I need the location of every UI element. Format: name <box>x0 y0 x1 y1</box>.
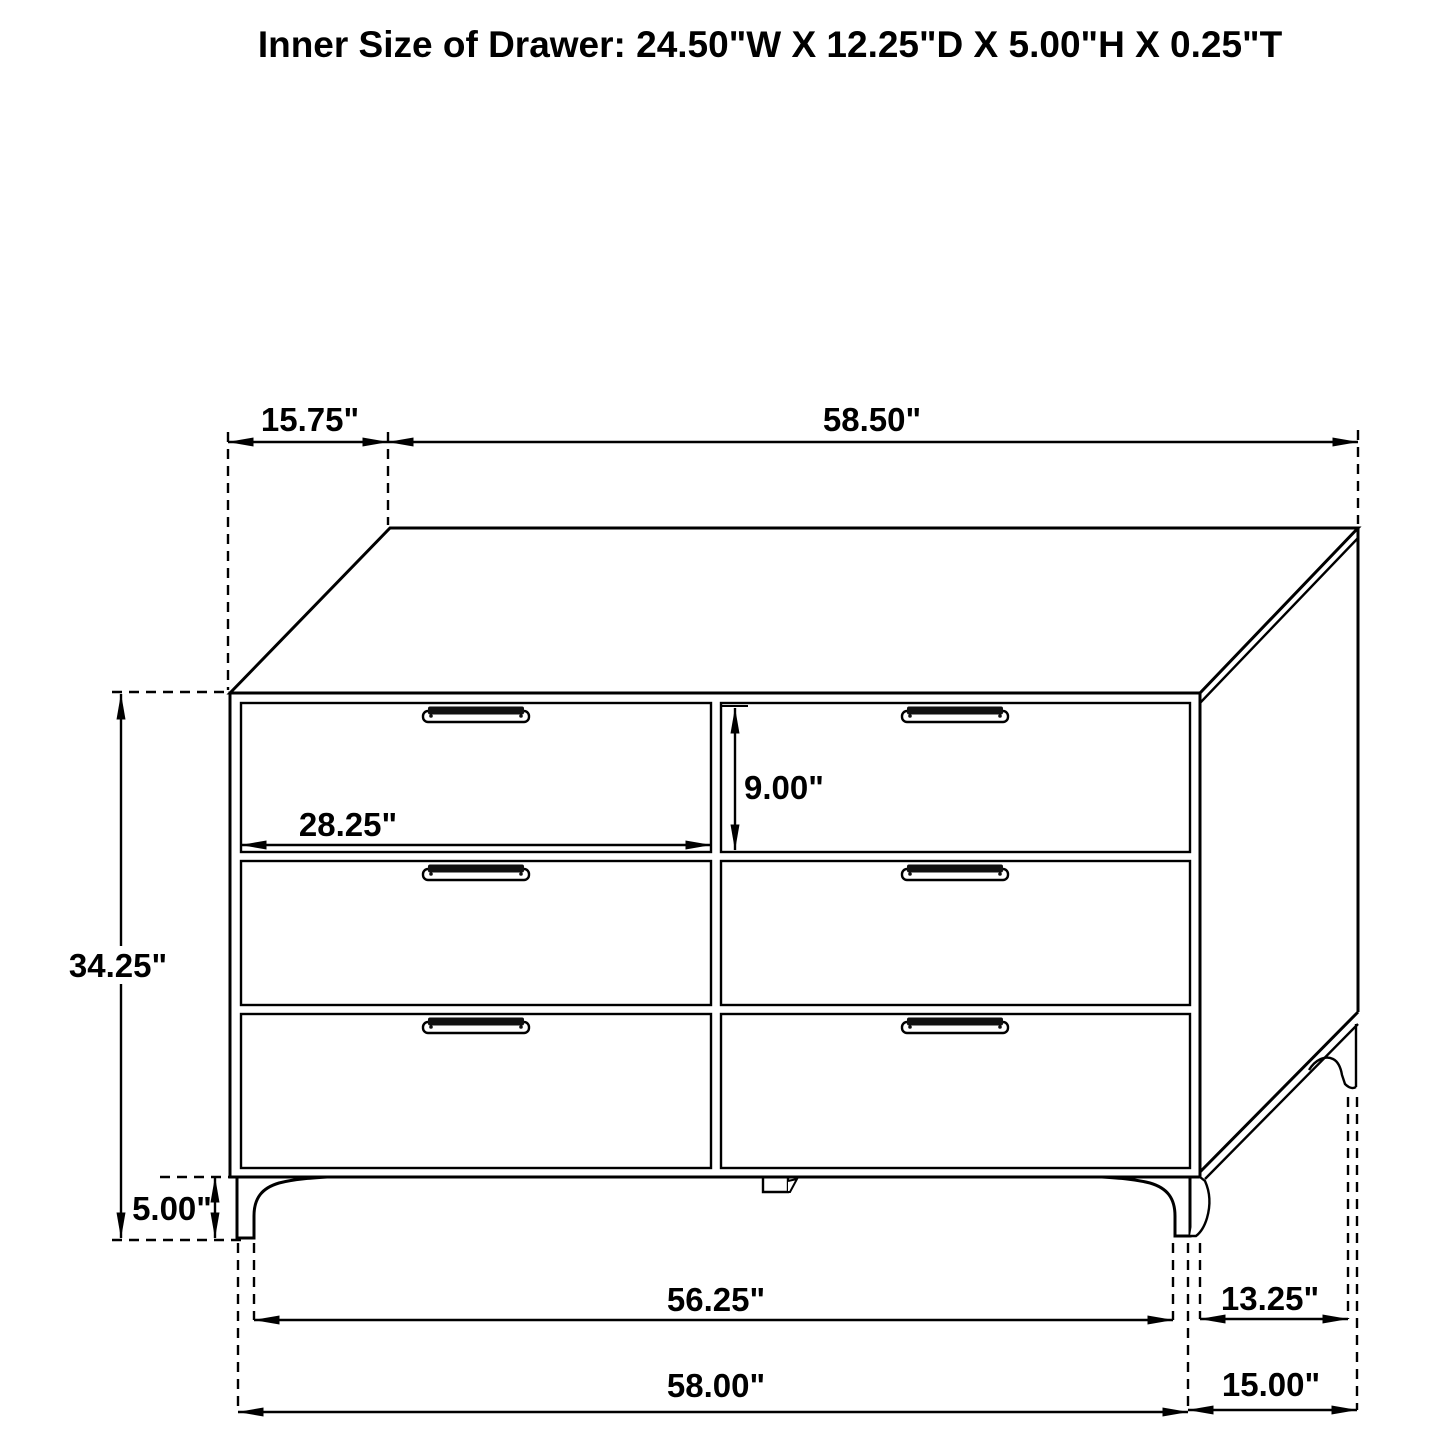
dim-label-base-depth: 15.00" <box>1222 1366 1320 1403</box>
dim-top-width: 58.50" <box>388 401 1358 524</box>
front-right-foot-side <box>1190 1177 1209 1236</box>
dim-label-overall-height: 34.25" <box>69 947 167 984</box>
dim-base-depth: 15.00" <box>1188 1097 1357 1410</box>
drawer-front-middle-left <box>241 861 711 1005</box>
drawer-handle-bottom-right <box>902 1018 1008 1034</box>
dim-label-leg-height: 5.00" <box>132 1190 212 1227</box>
drawer-handle-top-left <box>423 707 529 723</box>
dim-label-top-width: 58.50" <box>823 401 921 438</box>
dim-label-drawer-height: 9.00" <box>744 769 824 806</box>
dim-feet-inner-width: 56.25" <box>254 1243 1173 1320</box>
dimension-diagram-page: Inner Size of Drawer: 24.50"W X 12.25"D … <box>0 0 1445 1445</box>
dim-overall-height: 34.25" <box>64 692 242 1240</box>
dresser-dimension-svg: Inner Size of Drawer: 24.50"W X 12.25"D … <box>0 0 1445 1445</box>
dim-label-feet-inner-width: 56.25" <box>667 1281 765 1318</box>
dim-leg-height: 5.00" <box>132 1177 232 1238</box>
dim-label-side-feet-span: 13.25" <box>1221 1280 1319 1317</box>
drawer-handle-top-right <box>902 707 1008 723</box>
drawer-front-middle-right <box>721 861 1190 1005</box>
center-foot <box>763 1177 797 1192</box>
dim-label-base-width: 58.00" <box>667 1367 765 1404</box>
dim-side-feet-span: 13.25" <box>1200 1097 1348 1319</box>
dim-label-top-depth: 15.75" <box>261 401 359 438</box>
page-title: Inner Size of Drawer: 24.50"W X 12.25"D … <box>258 24 1283 65</box>
drawer-handle-middle-right <box>902 865 1008 881</box>
drawer-handle-bottom-left <box>423 1018 529 1034</box>
dresser-drawing <box>230 528 1358 1238</box>
drawer-handle-middle-left <box>423 865 529 881</box>
dim-label-drawer-width: 28.25" <box>299 806 397 843</box>
front-left-foot <box>237 1177 328 1238</box>
drawer-front-bottom-left <box>241 1014 711 1168</box>
drawer-front-bottom-right <box>721 1014 1190 1168</box>
dim-base-width: 58.00" <box>238 1243 1188 1412</box>
dresser-top <box>230 528 1358 693</box>
front-right-foot <box>1102 1177 1190 1236</box>
